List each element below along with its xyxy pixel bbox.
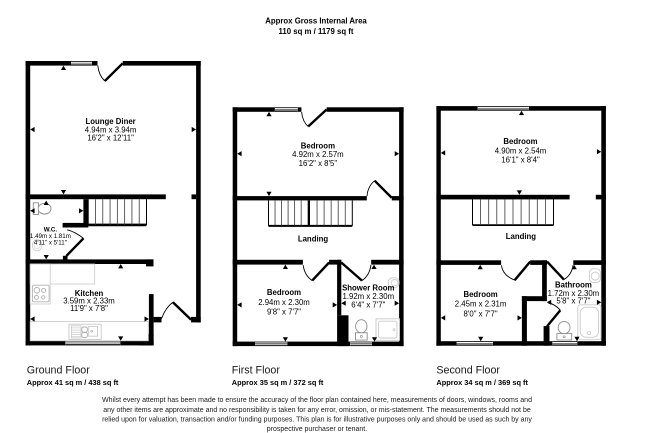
svg-text:4'11" x 5'11": 4'11" x 5'11"	[34, 240, 67, 247]
svg-text:8'0" x 7'7": 8'0" x 7'7"	[464, 310, 498, 319]
svg-text:4.92m x 2.57m: 4.92m x 2.57m	[292, 150, 344, 159]
svg-text:9'8" x 7'7": 9'8" x 7'7"	[267, 308, 301, 317]
svg-text:any other items are approximat: any other items are approximate and no r…	[103, 407, 531, 414]
svg-text:16'1" x 8'4": 16'1" x 8'4"	[501, 156, 540, 165]
svg-text:Bedroom: Bedroom	[503, 137, 537, 146]
svg-text:Bedroom: Bedroom	[267, 288, 301, 297]
svg-text:2.45m x 2.31m: 2.45m x 2.31m	[455, 300, 507, 309]
svg-text:Approx Gross Internal Area: Approx Gross Internal Area	[265, 17, 367, 26]
svg-text:Bedroom: Bedroom	[463, 290, 497, 299]
svg-text:relied upon for valuation, tra: relied upon for valuation, transaction a…	[102, 416, 532, 423]
svg-text:Approx 35 sq m / 372 sq ft: Approx 35 sq m / 372 sq ft	[232, 378, 324, 387]
svg-text:Second Floor: Second Floor	[436, 365, 500, 377]
svg-text:16'2" x 12'11": 16'2" x 12'11"	[87, 134, 134, 143]
svg-text:Whilst every attempt has been: Whilst every attempt has been made to en…	[102, 397, 532, 404]
svg-text:First Floor: First Floor	[232, 365, 281, 377]
svg-text:4.90m x 2.54m: 4.90m x 2.54m	[495, 147, 547, 156]
svg-text:Landing: Landing	[298, 234, 329, 243]
svg-text:110 sq m / 1179 sq ft: 110 sq m / 1179 sq ft	[279, 27, 354, 36]
svg-text:Approx 34 sq m / 369 sq ft: Approx 34 sq m / 369 sq ft	[436, 378, 528, 387]
svg-text:Landing: Landing	[506, 232, 537, 241]
svg-text:6'4" x 7'7": 6'4" x 7'7"	[351, 301, 385, 310]
svg-text:11'9" x 7'8": 11'9" x 7'8"	[70, 304, 108, 313]
svg-text:prospective purchaser or tenan: prospective purchaser or tenant.	[267, 426, 367, 433]
svg-text:Approx 41 sq m / 438 sq ft: Approx 41 sq m / 438 sq ft	[27, 378, 119, 387]
svg-text:Ground Floor: Ground Floor	[27, 365, 90, 377]
svg-text:16'2" x 8'5": 16'2" x 8'5"	[299, 159, 338, 168]
svg-text:2.94m x 2.30m: 2.94m x 2.30m	[258, 298, 310, 307]
svg-text:5'8" x 7'7": 5'8" x 7'7"	[556, 296, 590, 305]
